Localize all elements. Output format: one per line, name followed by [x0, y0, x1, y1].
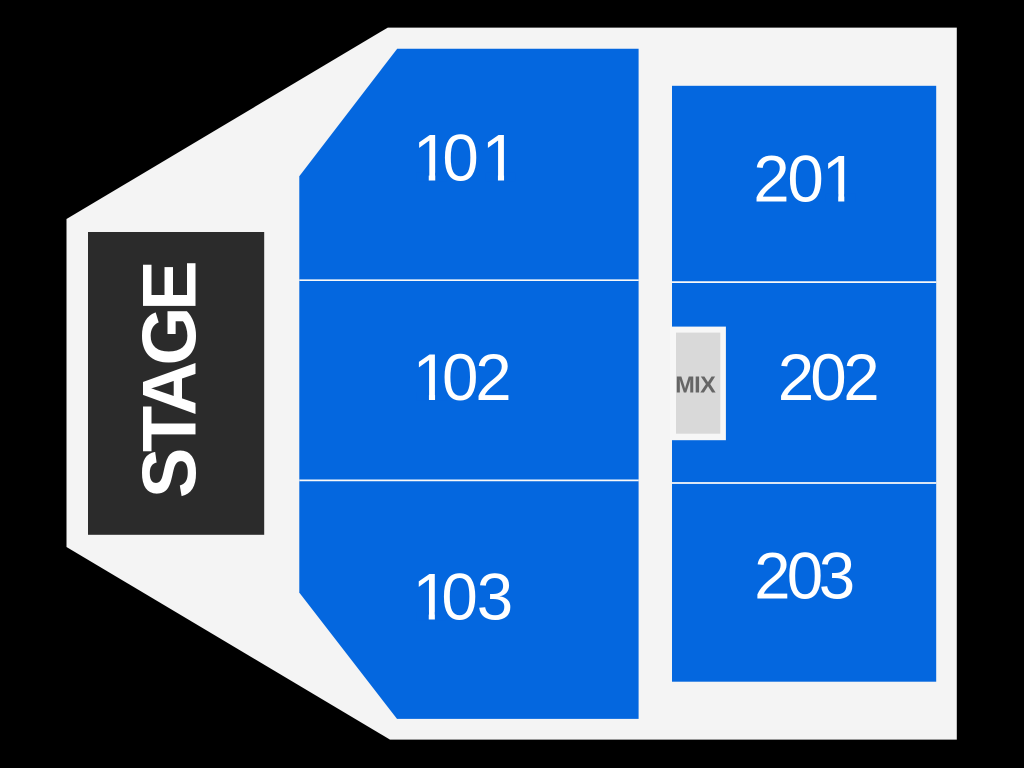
svg-text:MIX: MIX — [675, 372, 716, 398]
svg-text:103: 103 — [412, 561, 513, 634]
svg-text:202: 202 — [778, 341, 880, 414]
svg-text:102: 102 — [413, 341, 512, 414]
svg-text:101: 101 — [413, 121, 518, 194]
svg-text:STAGE: STAGE — [128, 260, 213, 498]
svg-text:203: 203 — [754, 540, 855, 613]
svg-text:201: 201 — [753, 143, 858, 216]
